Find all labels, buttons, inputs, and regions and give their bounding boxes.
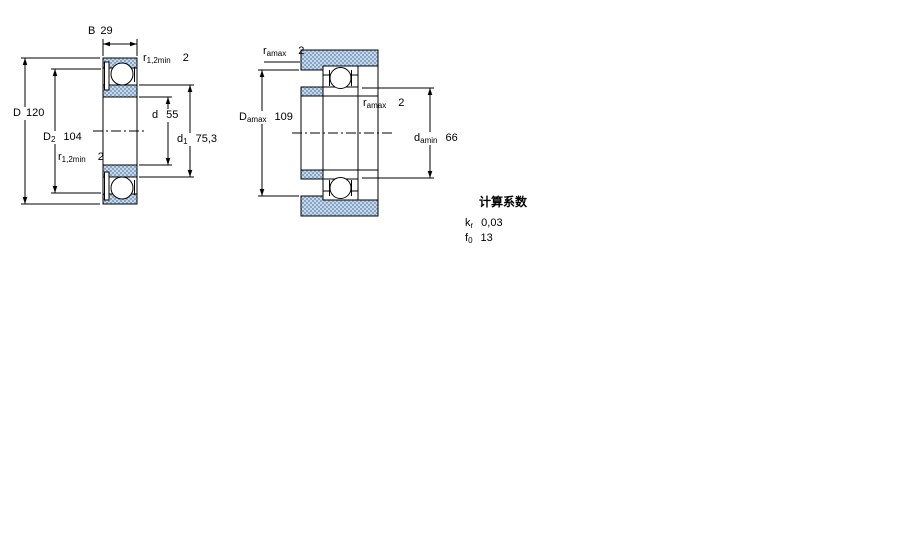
label-D: D120	[12, 107, 45, 120]
label-ramax-mid: ramax2	[363, 97, 404, 110]
label-ramax-top: ramax2	[263, 45, 304, 58]
shield-bottom	[105, 172, 110, 200]
label-D2: D2104	[42, 131, 83, 144]
label-d1: d175,3	[176, 133, 218, 146]
dim-B	[103, 39, 137, 56]
shaft-shoulder-top	[301, 87, 323, 96]
ball-bottom	[330, 178, 351, 199]
shield-top	[105, 62, 110, 90]
right-mounting-section	[258, 50, 434, 216]
factor-kr: kr0,03	[465, 217, 503, 230]
dim-d1	[139, 85, 194, 177]
label-B: B29	[88, 25, 113, 38]
label-d: d55	[151, 109, 179, 122]
label-damin: damin66	[413, 132, 459, 145]
calculation-factors-heading: 计算系数	[479, 195, 527, 209]
label-r12min-top: r1,2min2	[143, 52, 189, 65]
label-Damax: Damax109	[238, 111, 294, 124]
factor-f0: f013	[465, 232, 493, 245]
ball-bottom	[111, 177, 133, 199]
shaft-shoulder-bottom	[301, 170, 323, 179]
label-r12min-bottom: r1,2min2	[58, 151, 104, 164]
bearing-drawing-canvas: B29 D120 D2104 r1,2min2 r1,2min2 d55 d17…	[0, 0, 900, 560]
ball-top	[111, 63, 133, 85]
technical-drawing	[0, 0, 900, 560]
ball-top	[330, 68, 351, 89]
